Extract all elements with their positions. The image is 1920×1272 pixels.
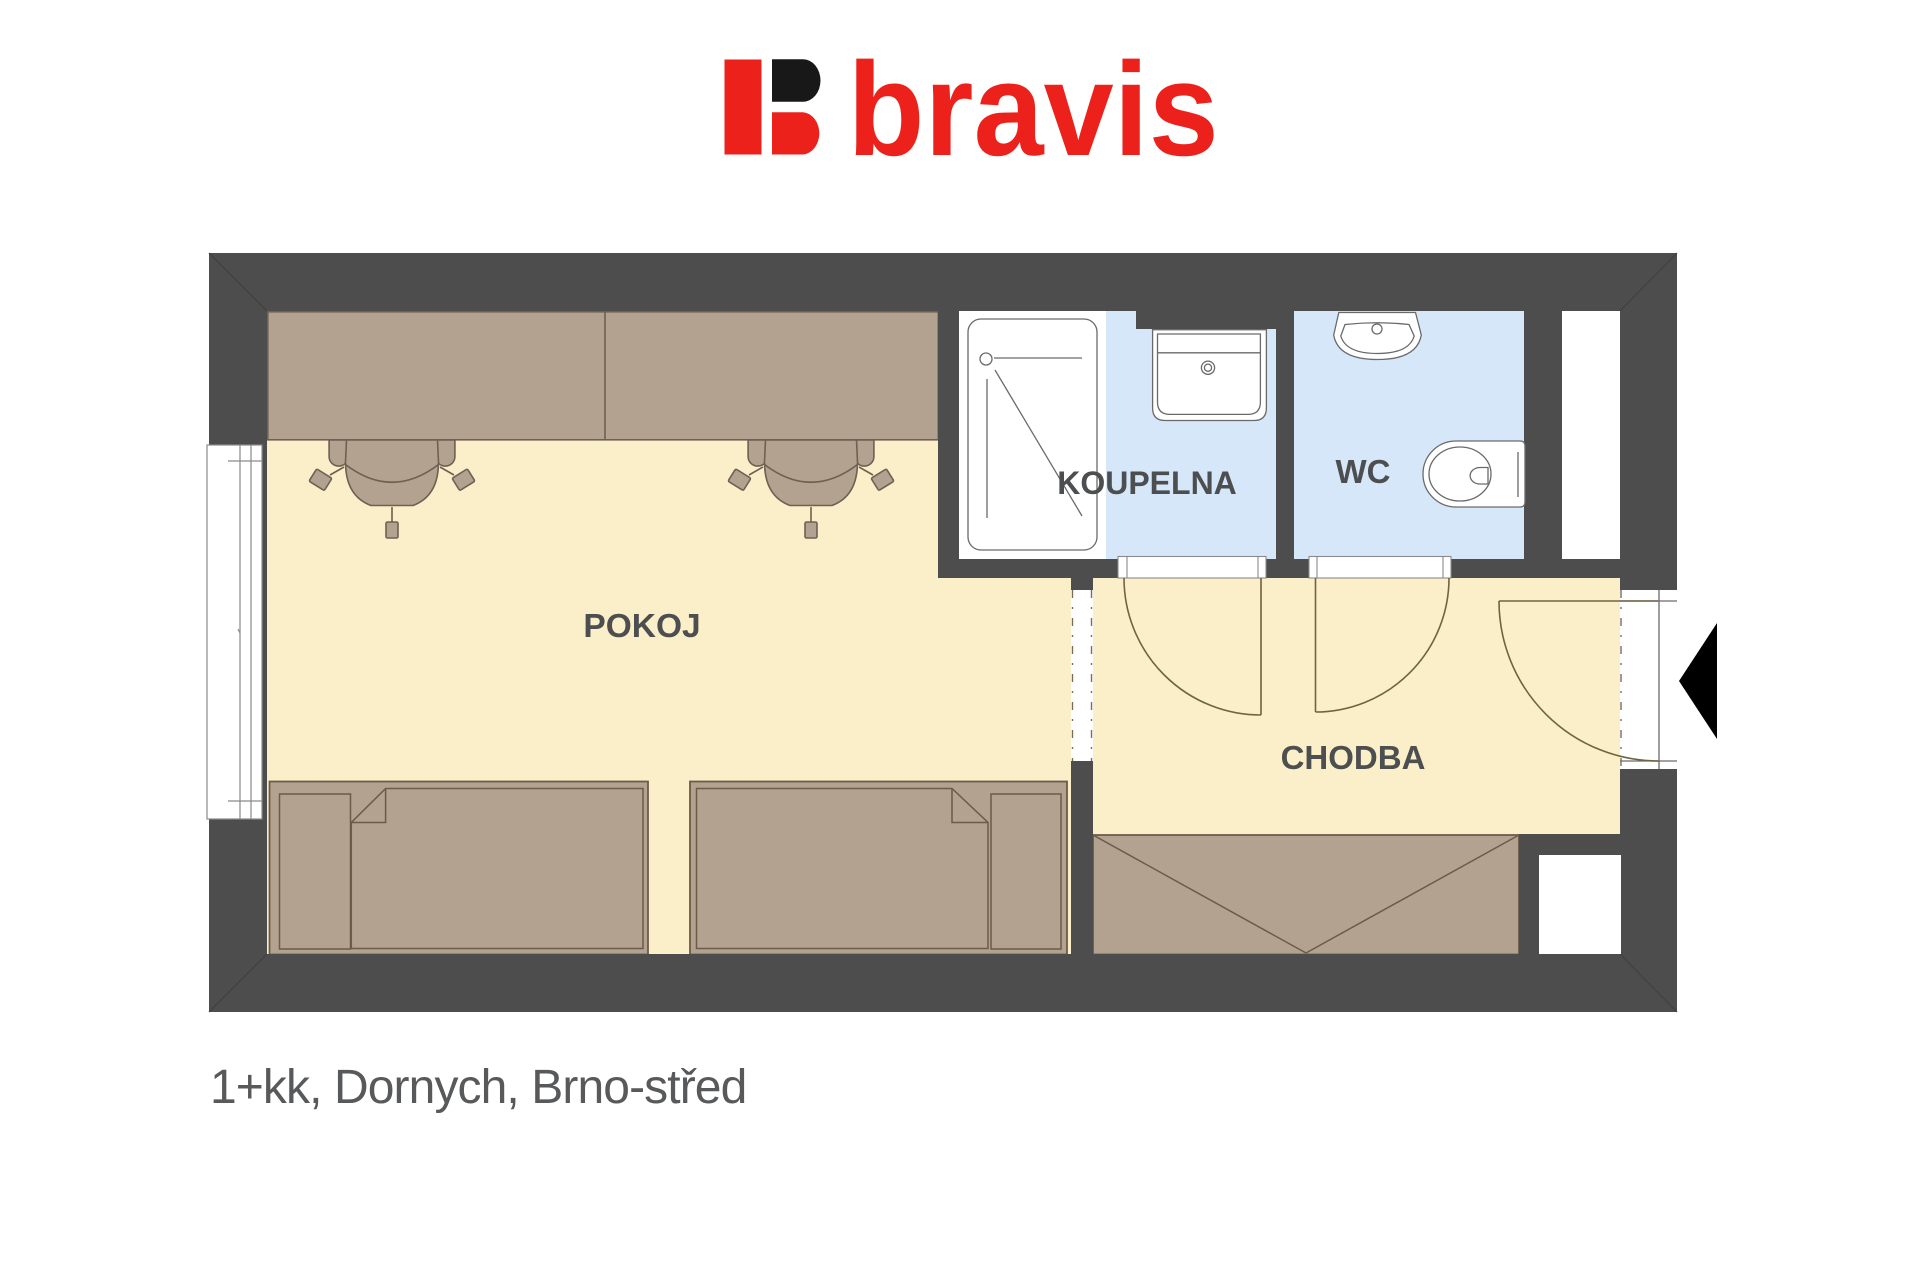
svg-text:WC: WC [1336, 453, 1391, 490]
svg-text:1+kk, Dornych, Brno-střed: 1+kk, Dornych, Brno-střed [210, 1061, 746, 1114]
svg-text:KOUPELNA: KOUPELNA [1057, 465, 1237, 501]
svg-text:bravis: bravis [848, 36, 1219, 184]
svg-text:CHODBA: CHODBA [1281, 739, 1426, 776]
svg-text:POKOJ: POKOJ [583, 608, 700, 645]
